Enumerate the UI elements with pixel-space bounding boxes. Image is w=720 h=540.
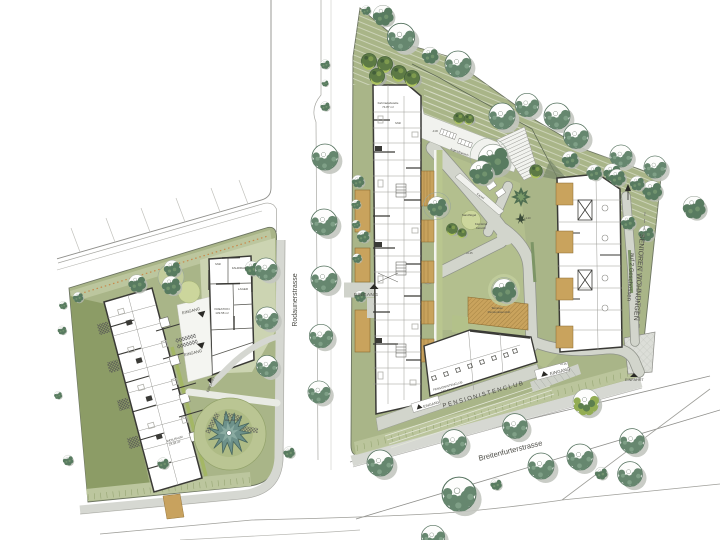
svg-text:+1.20: +1.20 (524, 216, 531, 220)
svg-text:EINGANG: EINGANG (354, 292, 378, 298)
svg-text:Müll: Müll (215, 262, 221, 266)
svg-text:bereich: bereich (476, 226, 486, 230)
svg-text:-0.30: -0.30 (432, 129, 438, 133)
svg-text:Pensionistenclub: Pensionistenclub (488, 310, 511, 314)
svg-text:74.87 m²: 74.87 m² (382, 105, 394, 109)
svg-text:139.58 m²: 139.58 m² (215, 311, 229, 315)
svg-text:Hausbaum: Hausbaum (225, 418, 240, 422)
svg-text:EINFAHRT: EINFAHRT (625, 378, 644, 382)
svg-text:+0.15: +0.15 (560, 362, 567, 366)
svg-text:FAHRRAD: FAHRRAD (232, 266, 247, 270)
svg-text:Rodaunerstrasse: Rodaunerstrasse (292, 273, 299, 326)
svg-text:+0.45: +0.45 (466, 251, 473, 255)
svg-text:LAGER: LAGER (238, 287, 249, 291)
svg-text:Müll: Müll (395, 121, 401, 125)
svg-text:Sandhügel: Sandhügel (462, 213, 477, 217)
